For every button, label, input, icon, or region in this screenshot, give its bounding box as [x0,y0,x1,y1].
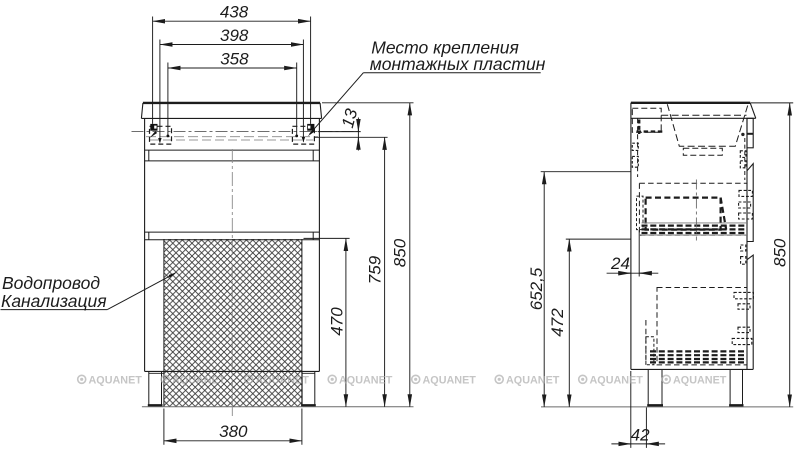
svg-text:850: 850 [771,238,790,267]
svg-text:монтажных пластин: монтажных пластин [370,54,546,74]
svg-text:470: 470 [328,307,347,336]
svg-text:472: 472 [548,308,567,337]
svg-text:438: 438 [220,2,249,21]
svg-text:AQUANET: AQUANET [89,374,143,386]
svg-text:Канализация: Канализация [1,291,107,311]
svg-text:24: 24 [610,254,630,273]
svg-text:Водопровод: Водопровод [2,273,100,293]
svg-text:759: 759 [366,255,385,284]
svg-text:652,5: 652,5 [527,267,546,310]
svg-text:850: 850 [391,238,410,267]
svg-text:398: 398 [220,26,249,45]
svg-text:358: 358 [220,50,249,69]
svg-text:380: 380 [219,422,248,441]
svg-text:42: 42 [631,426,650,445]
